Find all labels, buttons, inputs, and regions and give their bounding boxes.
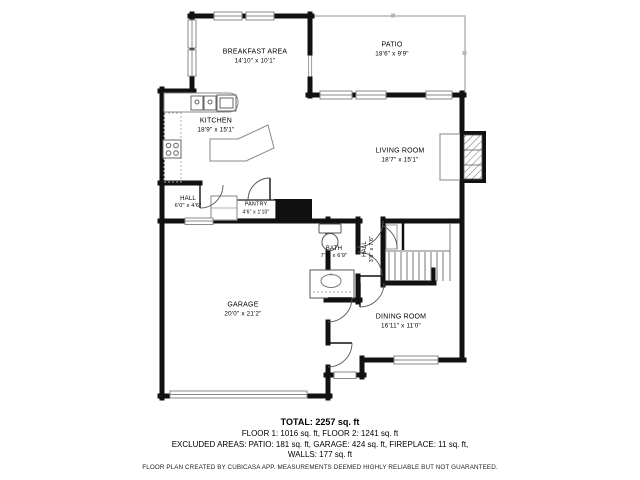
room-name: DINING ROOM xyxy=(376,313,426,323)
disclaimer-text: FLOOR PLAN CREATED BY CUBICASA APP. MEAS… xyxy=(0,464,640,471)
room-name: HALL xyxy=(175,195,202,203)
room-label-pantry: PANTRY 4'6" x 1'10" xyxy=(242,202,269,217)
room-label-breakfast-area: BREAKFAST AREA 14'10" x 10'1" xyxy=(223,48,288,67)
room-dims: 3'8" x 7'6" xyxy=(369,236,377,263)
room-dims: 4'6" x 1'10" xyxy=(242,209,269,216)
fireplace-icon xyxy=(440,131,486,183)
vanity-sink-icon xyxy=(310,270,354,298)
kitchen-counter xyxy=(164,93,238,182)
floor-areas-text: FLOOR 1: 1016 sq. ft, FLOOR 2: 1241 sq. … xyxy=(0,429,640,438)
room-label-patio: PATIO 18'6" x 9'9" xyxy=(375,41,408,60)
room-name: BATH xyxy=(321,245,348,253)
floorplan-page: BREAKFAST AREA 14'10" x 10'1" PATIO 18'6… xyxy=(0,0,640,480)
room-dims: 18'9" x 15'1" xyxy=(197,126,234,135)
garage-door-icon xyxy=(170,391,307,398)
room-label-garage: GARAGE 20'0" x 21'2" xyxy=(224,301,261,320)
room-dims: 20'0" x 21'2" xyxy=(224,310,261,319)
room-label-kitchen: KITCHEN 18'9" x 15'1" xyxy=(197,117,234,136)
room-name: HALL xyxy=(361,236,369,263)
room-dims: 18'6" x 9'9" xyxy=(375,50,408,59)
chase-solid-block xyxy=(274,199,312,221)
room-name: PANTRY xyxy=(242,202,269,210)
room-name: PATIO xyxy=(375,41,408,51)
sliding-door-icon xyxy=(309,53,312,79)
walls-area-text: WALLS: 177 sq. ft xyxy=(0,450,640,459)
room-label-hall-vertical: HALL 3'8" x 7'6" xyxy=(361,236,377,263)
stove-icon xyxy=(163,140,181,158)
room-label-living-room: LIVING ROOM 18'7" x 15'1" xyxy=(376,147,425,166)
floorplan-drawing xyxy=(0,0,640,480)
room-dims: 18'7" x 15'1" xyxy=(376,156,425,165)
room-dims: 14'10" x 10'1" xyxy=(223,57,288,66)
room-label-bath: BATH 7'1" x 6'9" xyxy=(321,245,348,261)
room-name: GARAGE xyxy=(224,301,261,311)
room-label-dining-room: DINING ROOM 16'11" x 11'0" xyxy=(376,313,426,332)
stairs-icon xyxy=(385,223,450,281)
fridge-icon xyxy=(211,196,237,220)
room-dims: 16'11" x 11'0" xyxy=(376,322,426,331)
total-area-text: TOTAL: 2257 sq. ft xyxy=(0,417,640,427)
room-dims: 7'1" x 6'9" xyxy=(321,253,348,261)
room-name: BREAKFAST AREA xyxy=(223,48,288,58)
excluded-areas-text: EXCLUDED AREAS: PATIO: 181 sq. ft, GARAG… xyxy=(0,440,640,449)
room-label-hall: HALL 6'0" x 4'6" xyxy=(175,195,202,211)
room-name: KITCHEN xyxy=(197,117,234,127)
room-name: LIVING ROOM xyxy=(376,147,425,157)
room-dims: 6'0" x 4'6" xyxy=(175,203,202,211)
